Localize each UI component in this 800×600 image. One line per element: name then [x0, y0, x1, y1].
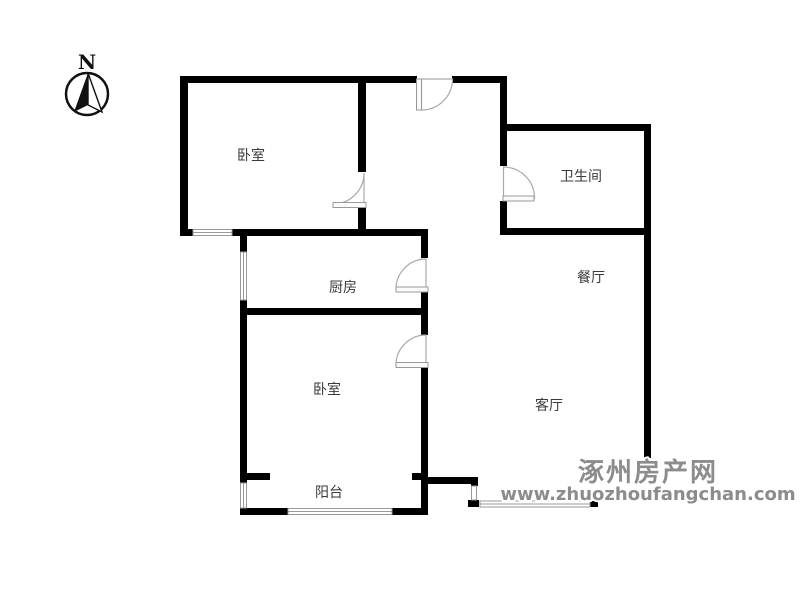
window-balcony-bottom — [288, 509, 392, 515]
label-bedroom-top: 卧室 — [237, 147, 265, 164]
wall-left-lower — [240, 300, 247, 483]
wall-kitchen-left-stub — [240, 236, 247, 252]
wall-bathroom-top — [500, 124, 651, 131]
label-bedroom-bottom: 卧室 — [313, 381, 341, 398]
wall-kitchen-bottom — [240, 308, 428, 315]
door-kitchen — [396, 259, 428, 292]
window-balcony-left — [241, 483, 247, 508]
wall-bathroom-bottom — [500, 228, 651, 235]
wall-balcony-bottom-left — [240, 508, 288, 515]
window-bedroom-top — [193, 230, 232, 236]
compass-n-label: N — [78, 50, 96, 74]
wall-mid-vertical-c — [421, 367, 428, 508]
label-dining: 餐厅 — [577, 270, 605, 286]
wall-bedroom-bottom-left-seg — [240, 473, 270, 480]
wall-topright-connector — [500, 76, 507, 131]
wall-step-cap-top — [471, 477, 478, 486]
wall-living-bottom — [421, 477, 478, 484]
north-compass: N — [66, 50, 108, 115]
door-bedroom-top — [333, 173, 366, 208]
door-entrance — [417, 79, 453, 110]
wall-mid-vertical-a — [421, 229, 428, 258]
window-kitchen-left — [241, 252, 247, 300]
wall-bedroom-top-right-upper — [358, 83, 366, 172]
wall-bedroom-top-left — [180, 76, 188, 236]
label-living: 客厅 — [535, 397, 563, 414]
floor-plan: 卧室 卫生间 厨房 餐厅 卧室 客厅 阳台 N 涿州房产网 www.zhuozh… — [0, 0, 800, 600]
wall-top-right — [452, 76, 507, 83]
wall-mid-horizontal-a — [180, 229, 193, 236]
label-kitchen: 厨房 — [329, 280, 357, 296]
door-bedroom-bottom — [396, 335, 428, 368]
watermark-site-url: www.zhuozhoufangchan.com — [500, 484, 795, 505]
floor-plan-canvas: 卧室 卫生间 厨房 餐厅 卧室 客厅 阳台 N 涿州房产网 www.zhuozh… — [0, 0, 800, 600]
wall-mid-horizontal-b — [232, 229, 428, 236]
label-bathroom: 卫生间 — [560, 169, 602, 185]
wall-bathroom-left-upper — [500, 131, 507, 166]
watermark: 涿州房产网 www.zhuozhoufangchan.com — [500, 458, 795, 505]
wall-top-left — [180, 76, 417, 83]
label-balcony: 阳台 — [315, 485, 343, 501]
compass-needle-left — [74, 73, 88, 112]
walls — [180, 76, 651, 515]
wall-step-cap-bottom — [468, 500, 479, 507]
windows — [193, 230, 590, 515]
wall-balcony-bottom-right — [392, 508, 428, 515]
window-living-step — [472, 486, 477, 500]
door-bathroom — [503, 167, 535, 201]
wall-right-exterior — [644, 124, 651, 458]
